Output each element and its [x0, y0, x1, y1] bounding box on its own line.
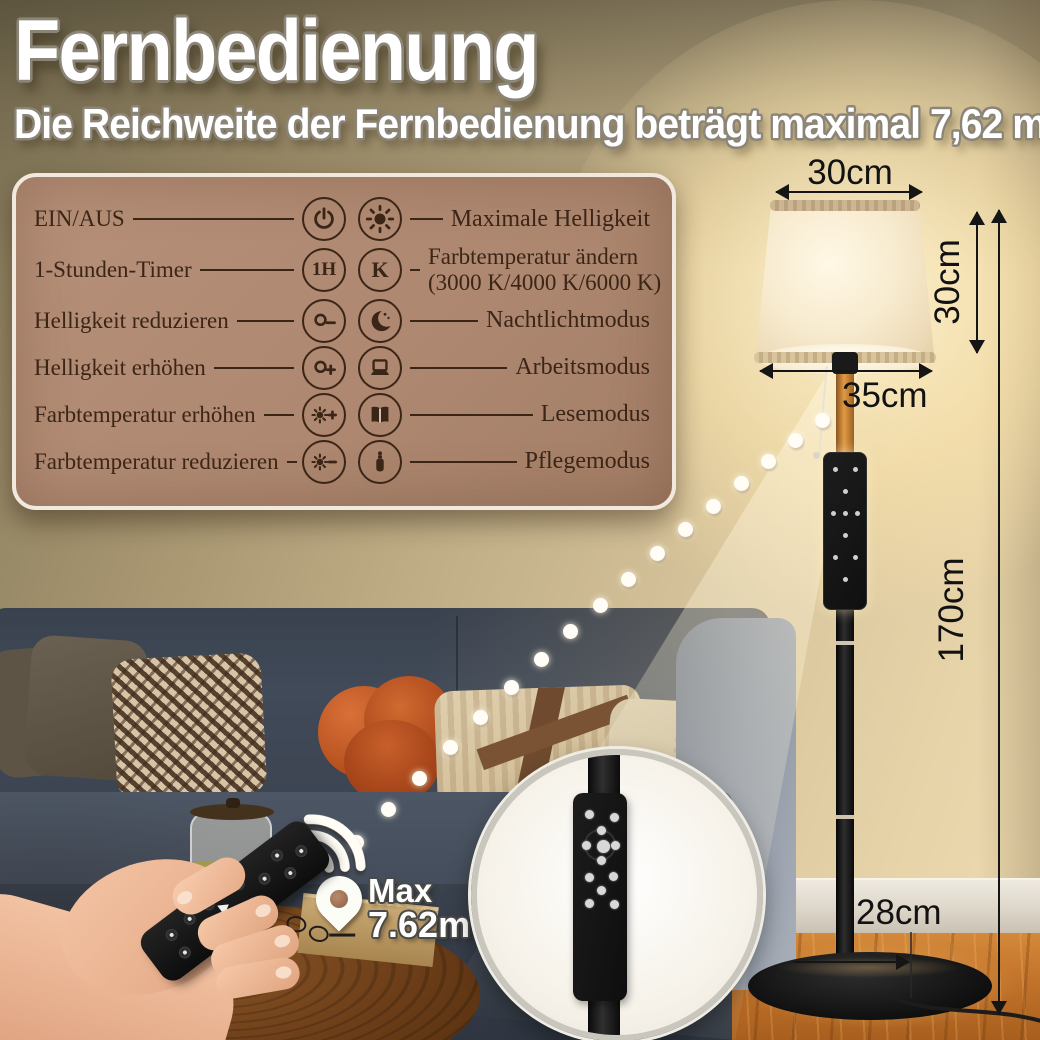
function-row-dim-up: Helligkeit erhöhen Arbeitsmodus [34, 346, 650, 390]
connector-line [410, 461, 517, 463]
function-label: Maximale Helligkeit [451, 206, 650, 233]
remote-button [256, 870, 273, 887]
location-pin-icon [314, 874, 366, 938]
trail-dot [381, 802, 396, 817]
function-label: Pflegemodus [525, 448, 650, 475]
remote-button [611, 841, 620, 850]
function-row-power: EIN/AUS Maximale Helligkeit [34, 197, 650, 241]
function-row-cct-down: Farbtemperatur reduzieren Pflegemodus [34, 440, 650, 484]
remote-button [597, 856, 606, 865]
night-mode-icon [358, 299, 402, 343]
remote-button [585, 899, 594, 908]
trail-dot [443, 740, 458, 755]
connector-line [133, 218, 294, 220]
trail-dot [815, 413, 830, 428]
function-row-dim-down: Helligkeit reduzieren Nachtlichtmodus [34, 299, 650, 343]
remote-button [585, 873, 594, 882]
connector-line [264, 414, 294, 416]
remote-button [831, 511, 836, 516]
remote-button [853, 555, 858, 560]
dim-arrow-base [793, 961, 909, 963]
pole-remote-holder [823, 452, 867, 610]
remote-button [597, 886, 606, 895]
connector-line [237, 320, 294, 322]
work-mode-icon [358, 346, 402, 390]
remote-button [843, 511, 848, 516]
dim-arrow-lamp-height [998, 210, 1000, 1014]
trail-dot [706, 499, 721, 514]
reading-mode-icon [358, 393, 402, 437]
trail-dot [504, 680, 519, 695]
dim-arrow-shade-top [776, 191, 922, 193]
trail-dot [534, 652, 549, 667]
dim-arrow-shade-bottom [760, 370, 932, 372]
trail-dot [593, 598, 608, 613]
remote-functions-panel: EIN/AUS Maximale Helligkeit 1-Stunden-Ti… [12, 173, 676, 510]
remote-button [597, 840, 610, 853]
max-range-badge: Max 7.62m [368, 874, 470, 943]
page-subtitle: Die Reichweite der Fernbedienung beträgt… [14, 100, 1040, 148]
timer-1h-icon: 1H [302, 248, 346, 292]
power-cord [880, 975, 1040, 1035]
function-label: Farbtemperatur ändern (3000 K/4000 K/600… [428, 244, 661, 296]
trail-dot [621, 572, 636, 587]
remote-button [610, 813, 619, 822]
shade-top-rim [770, 200, 920, 211]
function-label: Arbeitsmodus [515, 354, 650, 381]
max-range-line2: 7.62m [368, 907, 470, 943]
cct-up-icon [302, 393, 346, 437]
dim-shade-height: 30cm [928, 212, 968, 352]
function-label: Farbtemperatur erhöhen [34, 402, 256, 428]
connector-line [410, 320, 478, 322]
remote-button [843, 489, 848, 494]
pull-chain-ball [813, 452, 820, 459]
pole-joint [836, 641, 854, 645]
cct-down-icon [302, 440, 346, 484]
connector-line [410, 269, 420, 271]
max-range-line1: Max [368, 874, 470, 907]
function-label: Helligkeit erhöhen [34, 355, 206, 381]
trail-dot [473, 710, 488, 725]
product-infographic: 30cm 30cm 35cm 170cm 28cm EIN/AUS Maxima… [0, 0, 1040, 1040]
trail-dot [412, 771, 427, 786]
remote-button [609, 872, 618, 881]
page-title: Fernbedienung [14, 2, 538, 101]
trail-dot [734, 476, 749, 491]
connector-line [287, 461, 297, 463]
max-brightness-icon [358, 197, 402, 241]
kelvin-icon: K [358, 248, 402, 292]
function-label: Nachtlichtmodus [486, 307, 650, 334]
remote-button [177, 944, 194, 961]
power-icon [302, 197, 346, 241]
dim-shade-bottom-width: 35cm [842, 376, 928, 416]
inset-remote-control [573, 793, 627, 1001]
dim-up-icon [302, 346, 346, 390]
function-label: 1-Stunden-Timer [34, 257, 192, 283]
remote-button [585, 810, 594, 819]
function-label: EIN/AUS [34, 206, 125, 232]
remote-button [582, 841, 591, 850]
function-row-timer: 1-Stunden-Timer 1H K Farbtemperatur ände… [34, 244, 650, 296]
remote-button [597, 826, 606, 835]
remote-holder-inset [471, 749, 763, 1040]
function-label: Lesemodus [541, 401, 650, 428]
remote-button [843, 577, 848, 582]
remote-button [293, 843, 310, 860]
function-label: Farbtemperatur reduzieren [34, 449, 279, 475]
lamp-shade [755, 203, 935, 363]
connector-line [410, 414, 533, 416]
dim-lamp-height: 170cm [932, 530, 972, 690]
function-label: Helligkeit reduzieren [34, 308, 229, 334]
pole-joint [836, 815, 854, 819]
remote-button [610, 900, 619, 909]
remote-button [843, 533, 848, 538]
connector-line [410, 218, 443, 220]
care-mode-icon [358, 440, 402, 484]
connector-line [214, 367, 294, 369]
remote-button [853, 467, 858, 472]
remote-button [269, 847, 286, 864]
remote-button [163, 927, 180, 944]
dim-shade-top-width: 30cm [795, 153, 905, 193]
function-row-cct-up: Farbtemperatur erhöhen Lesemodus [34, 393, 650, 437]
remote-button [282, 865, 299, 882]
remote-button [833, 467, 838, 472]
connector-line [200, 269, 294, 271]
dim-tick-base-edge [910, 932, 912, 998]
remote-button [833, 555, 838, 560]
dim-base-width: 28cm [856, 893, 942, 933]
dim-down-icon [302, 299, 346, 343]
dim-arrow-shade-height [976, 212, 978, 353]
remote-button [855, 511, 860, 516]
connector-line [410, 367, 507, 369]
